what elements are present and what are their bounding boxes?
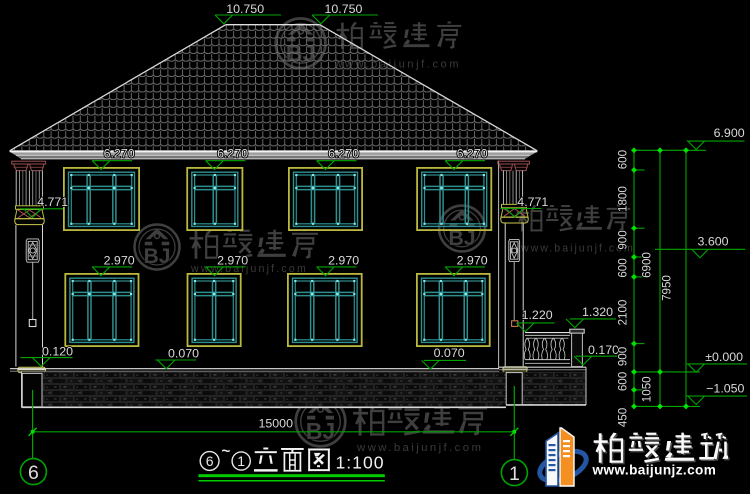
svg-text:1.220: 1.220	[522, 308, 553, 322]
svg-text:www.baijunjz.com: www.baijunjz.com	[592, 463, 717, 478]
svg-text:1800: 1800	[617, 186, 630, 212]
svg-text:4.771: 4.771	[37, 195, 68, 209]
svg-text:600: 600	[617, 258, 630, 277]
svg-text:1: 1	[237, 453, 245, 469]
svg-text:6.270: 6.270	[104, 147, 135, 161]
svg-text:450: 450	[617, 408, 630, 427]
svg-text:0.070: 0.070	[434, 346, 465, 360]
svg-text:3.600: 3.600	[698, 235, 729, 249]
svg-text:6.900: 6.900	[714, 126, 745, 140]
svg-text:0.120: 0.120	[42, 344, 73, 358]
svg-text:−1.050: −1.050	[706, 382, 744, 396]
svg-text:2.970: 2.970	[104, 253, 135, 267]
svg-text:15000: 15000	[259, 416, 294, 430]
svg-text:0.170: 0.170	[588, 343, 619, 357]
svg-text:2100: 2100	[617, 300, 630, 326]
svg-text:1.320: 1.320	[582, 305, 613, 319]
svg-text:6: 6	[28, 462, 39, 484]
svg-text:2.970: 2.970	[457, 253, 488, 267]
svg-text:900: 900	[617, 230, 630, 249]
svg-text:1: 1	[509, 463, 520, 485]
svg-text:2.970: 2.970	[328, 253, 359, 267]
svg-text:900: 900	[617, 347, 630, 366]
svg-text:±0.000: ±0.000	[705, 350, 743, 364]
svg-text:6.270: 6.270	[217, 147, 248, 161]
svg-text:6900: 6900	[641, 252, 654, 278]
svg-text:10.750: 10.750	[325, 2, 363, 16]
svg-text:10.750: 10.750	[226, 2, 264, 16]
svg-text:1:100: 1:100	[336, 453, 385, 473]
svg-text:600: 600	[617, 150, 630, 169]
svg-text:6: 6	[206, 453, 214, 469]
svg-text:0.070: 0.070	[168, 346, 199, 360]
svg-text:1050: 1050	[641, 376, 654, 402]
svg-text:6.270: 6.270	[457, 147, 488, 161]
svg-text:~: ~	[222, 443, 231, 460]
svg-text:4.771: 4.771	[517, 195, 548, 209]
svg-text:7950: 7950	[661, 275, 674, 301]
svg-text:600: 600	[617, 372, 630, 391]
svg-text:2.970: 2.970	[217, 253, 248, 267]
svg-text:6.270: 6.270	[328, 147, 359, 161]
